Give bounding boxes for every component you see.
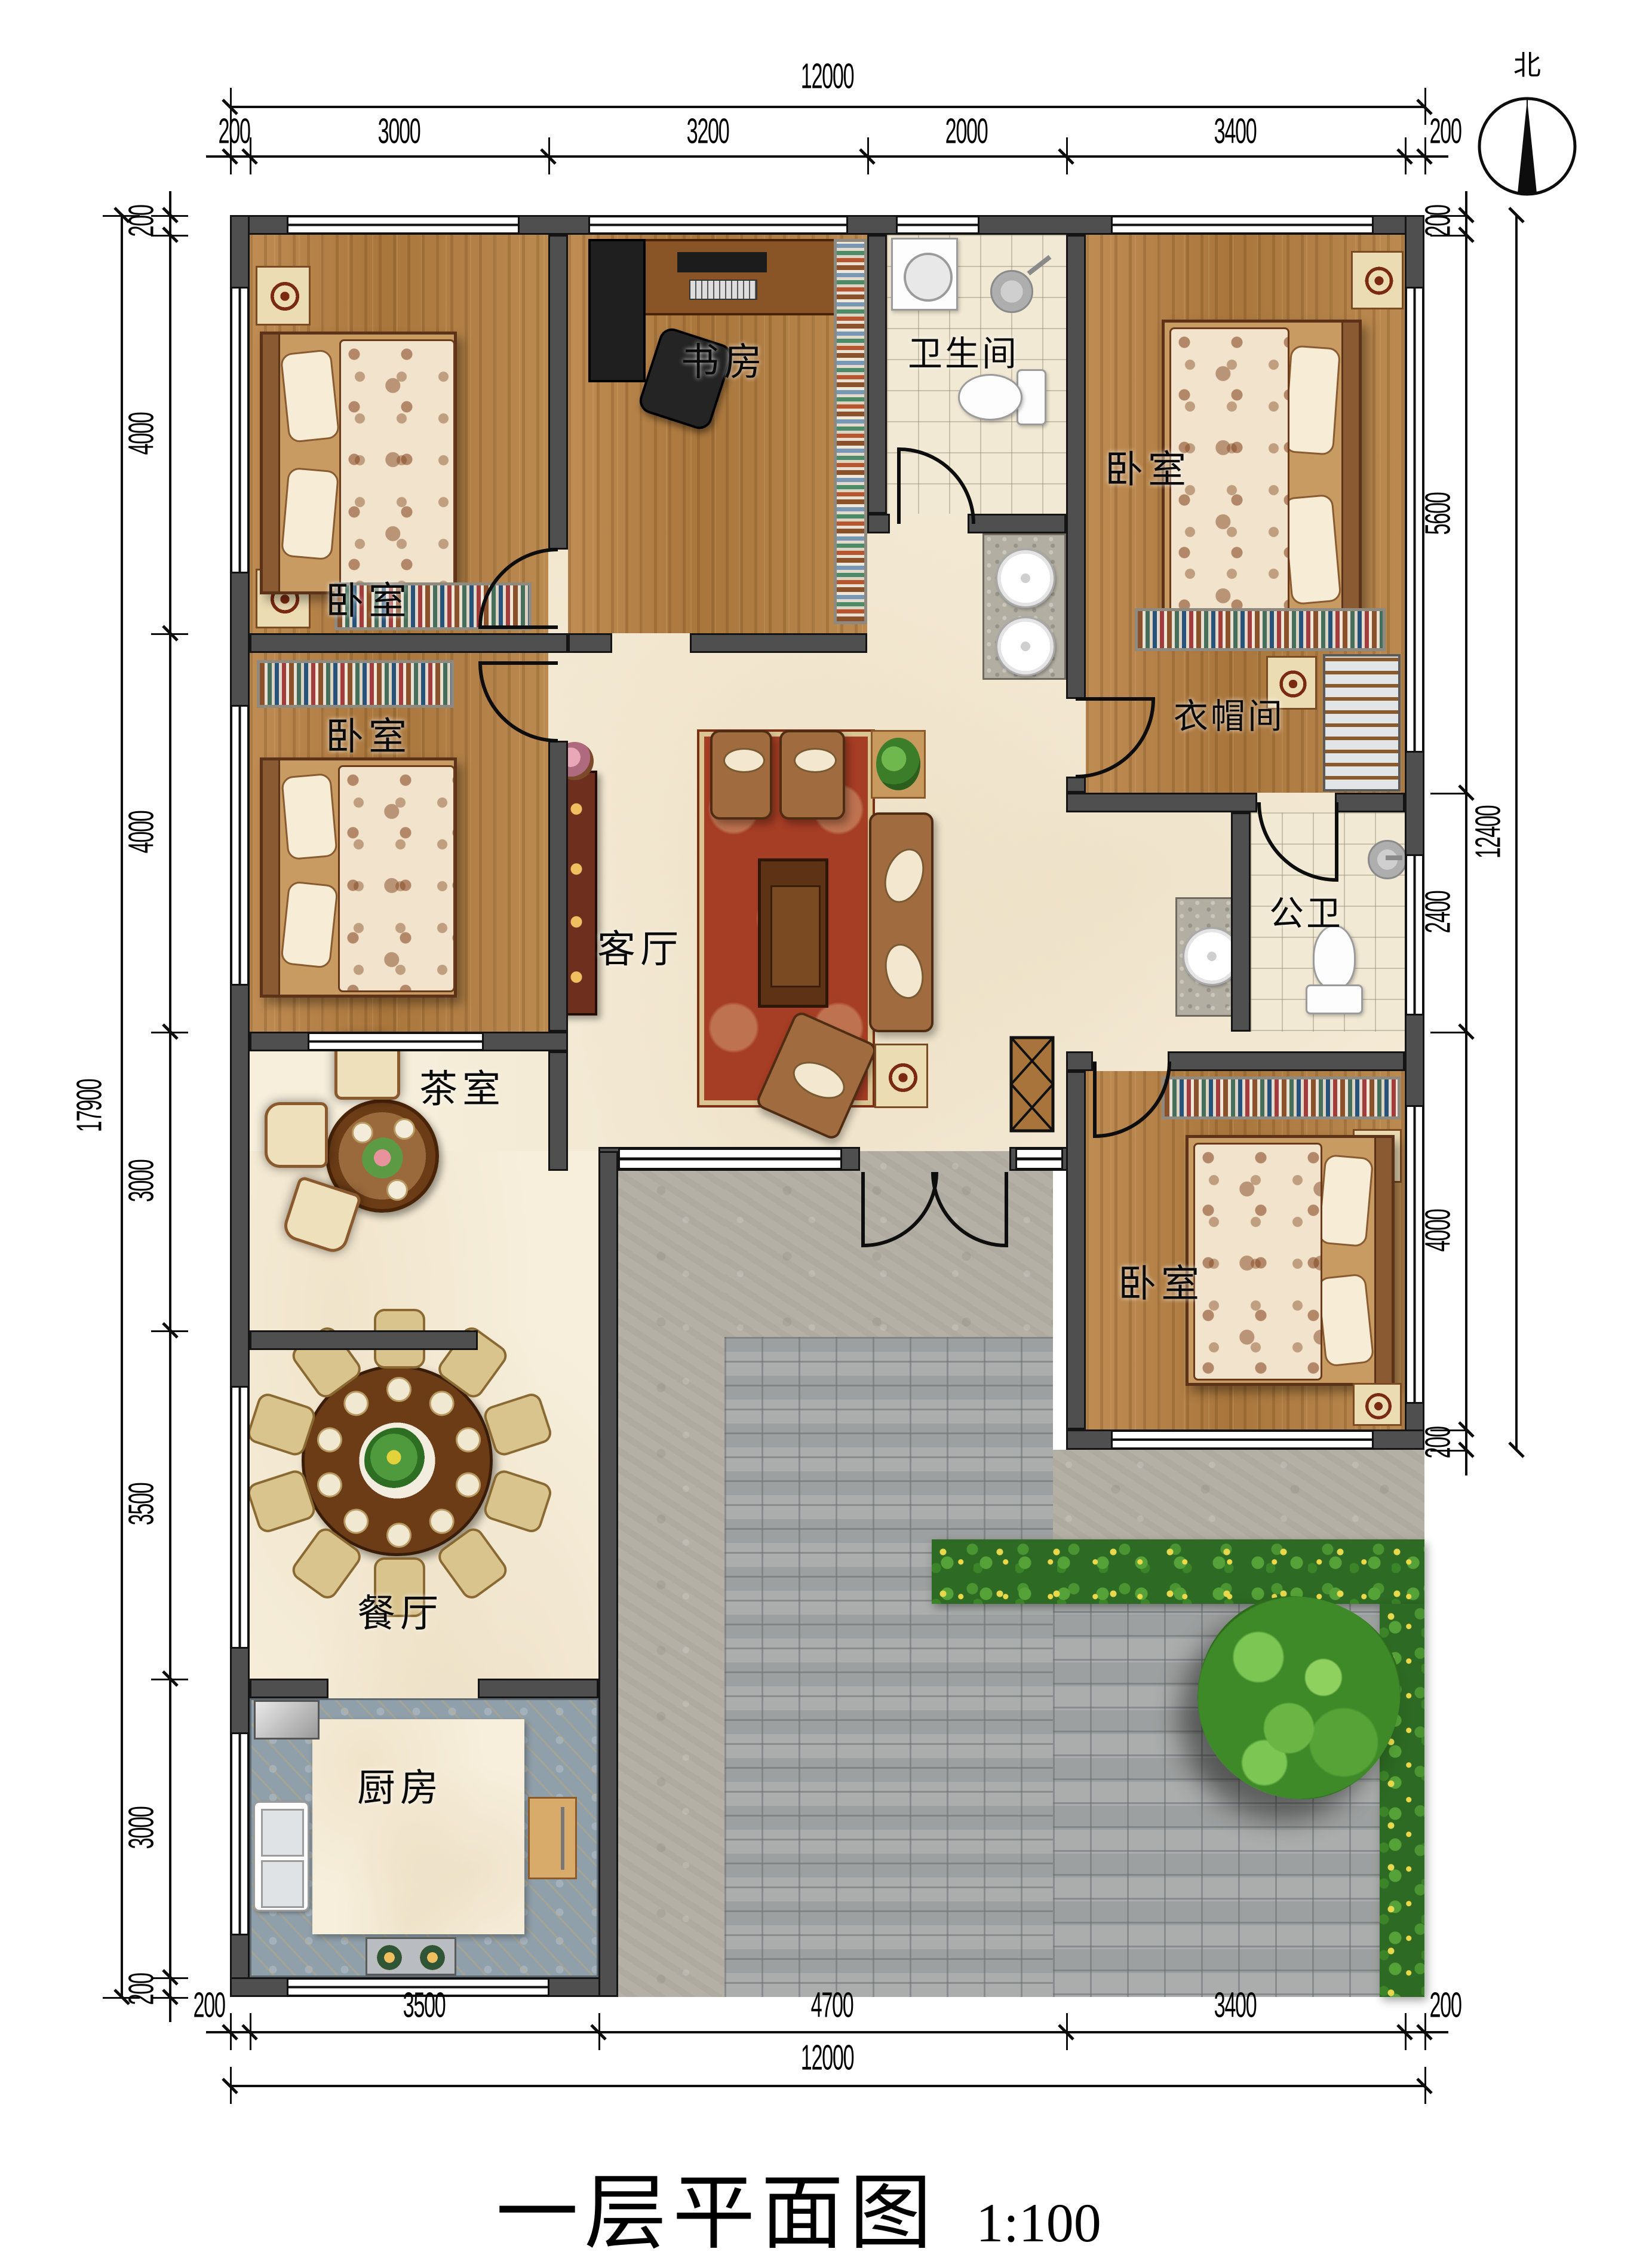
room-label-kitchen: 厨房 — [357, 1757, 443, 1812]
shower-arm-icon — [1028, 257, 1050, 274]
dimension-line — [121, 215, 123, 1997]
dim-seg: 4000 — [125, 802, 158, 862]
dim-total-right: 12400 — [1472, 794, 1505, 870]
room-label-study: 书房 — [681, 332, 767, 386]
dimension-line — [1515, 215, 1518, 1450]
dim-ext — [1430, 1032, 1467, 1033]
room-label-bedroom-bottom-right: 卧室 — [1118, 1253, 1204, 1308]
dim-seg: 3000 — [125, 1797, 158, 1858]
entry-screen-cabinet — [1011, 1038, 1053, 1131]
door-arc — [480, 550, 558, 627]
dim-seg: 200 — [1423, 115, 1468, 148]
dim-seg: 2400 — [1421, 882, 1455, 942]
door-and-symbol-overlay — [0, 0, 1652, 2264]
dim-seg: 200 — [211, 115, 257, 148]
room-label-living-room: 客厅 — [597, 919, 683, 974]
dim-seg: 200 — [186, 1989, 232, 2022]
room-label-bathroom-top: 卫生间 — [908, 326, 1019, 376]
dim-total-left: 17900 — [73, 1068, 106, 1143]
dim-seg: 3200 — [677, 115, 738, 148]
dimension-line — [230, 2085, 1424, 2087]
dimension-line — [206, 155, 1448, 158]
dim-seg: 3400 — [1205, 115, 1265, 148]
dim-seg: 3500 — [394, 1989, 454, 2022]
room-label-dining-room: 餐厅 — [357, 1583, 443, 1638]
dim-total-bottom: 12000 — [790, 2041, 865, 2075]
door-arc — [933, 1172, 1006, 1245]
dim-seg: 200 — [1423, 1989, 1468, 2022]
dim-seg: 200 — [125, 1967, 158, 2012]
dim-seg: 4000 — [125, 403, 158, 464]
dim-seg: 200 — [125, 198, 158, 244]
room-label-cloakroom: 衣帽间 — [1174, 688, 1285, 738]
compass-icon — [1479, 99, 1575, 194]
room-label-bedroom-top-left: 卧室 — [326, 570, 412, 625]
dim-seg: 3500 — [125, 1474, 158, 1534]
dim-seg: 200 — [1421, 198, 1455, 244]
drawing-title-block: 一层平面图 1:100 — [487, 2146, 1101, 2264]
dim-total-top: 12000 — [790, 60, 865, 93]
dim-seg: 4700 — [802, 1989, 862, 2022]
door-arc — [863, 1172, 936, 1245]
dim-ext — [1430, 793, 1467, 794]
dimension-line — [206, 2031, 1448, 2033]
door-arc — [480, 663, 558, 741]
door-arc — [1259, 802, 1337, 880]
room-label-bedroom-top-right: 卧室 — [1105, 439, 1191, 494]
dim-seg: 3400 — [1205, 1989, 1265, 2022]
dim-seg: 2000 — [936, 115, 996, 148]
dim-seg: 5600 — [1421, 483, 1455, 544]
dim-seg: 3000 — [125, 1151, 158, 1211]
door-arc — [1076, 699, 1153, 777]
room-label-bedroom-mid-left: 卧室 — [326, 706, 412, 761]
dim-seg: 4000 — [1421, 1200, 1455, 1260]
drawing-title: 一层平面图 — [487, 2146, 946, 2264]
dimension-line — [230, 106, 1424, 108]
dim-seg: 200 — [1421, 1420, 1455, 1465]
room-label-tea-room: 茶室 — [419, 1059, 505, 1113]
dim-seg: 3000 — [369, 115, 429, 148]
dimension-line — [1465, 191, 1467, 1475]
dimension-line — [169, 191, 171, 2022]
room-label-public-bathroom: 公卫 — [1269, 885, 1343, 935]
floor-plan-canvas: 北 卧室 书房 卫生间 卧室 衣帽间 卧室 客厅 公卫 茶室 卧室 餐厅 厨房 … — [0, 0, 1652, 2264]
compass-north-label: 北 — [1513, 44, 1541, 83]
door-arc — [1095, 1062, 1169, 1136]
door-arc — [899, 449, 974, 524]
drawing-scale: 1:100 — [976, 2191, 1101, 2254]
